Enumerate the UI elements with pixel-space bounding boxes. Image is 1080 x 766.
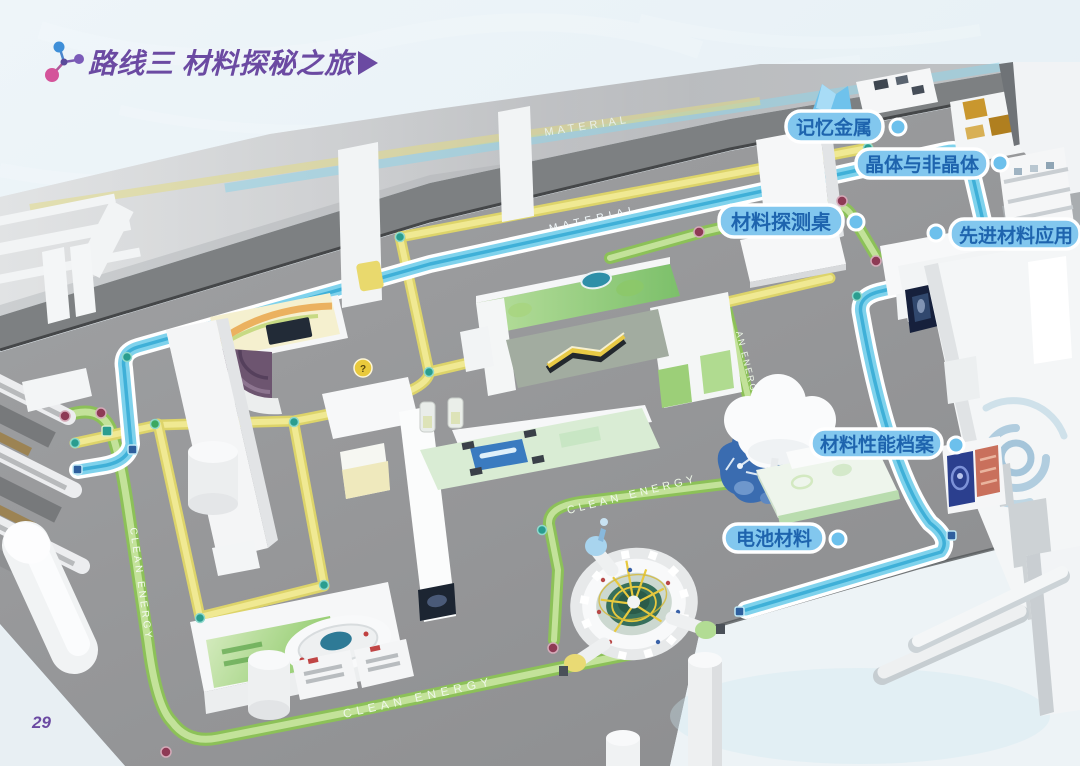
svg-text:材料探测桌: 材料探测桌 [731, 210, 832, 234]
svg-text:电池材料: 电池材料 [736, 527, 812, 550]
svg-text:材料性能档案: 材料性能档案 [820, 433, 935, 456]
svg-text:路线三 材料探秘之旅: 路线三 材料探秘之旅 [88, 48, 357, 79]
svg-text:晶体与非晶体: 晶体与非晶体 [865, 153, 980, 176]
svg-text:先进材料应用: 先进材料应用 [959, 224, 1073, 247]
svg-text:?: ? [360, 364, 366, 375]
svg-text:29: 29 [31, 713, 51, 732]
svg-text:记忆金属: 记忆金属 [796, 116, 872, 139]
